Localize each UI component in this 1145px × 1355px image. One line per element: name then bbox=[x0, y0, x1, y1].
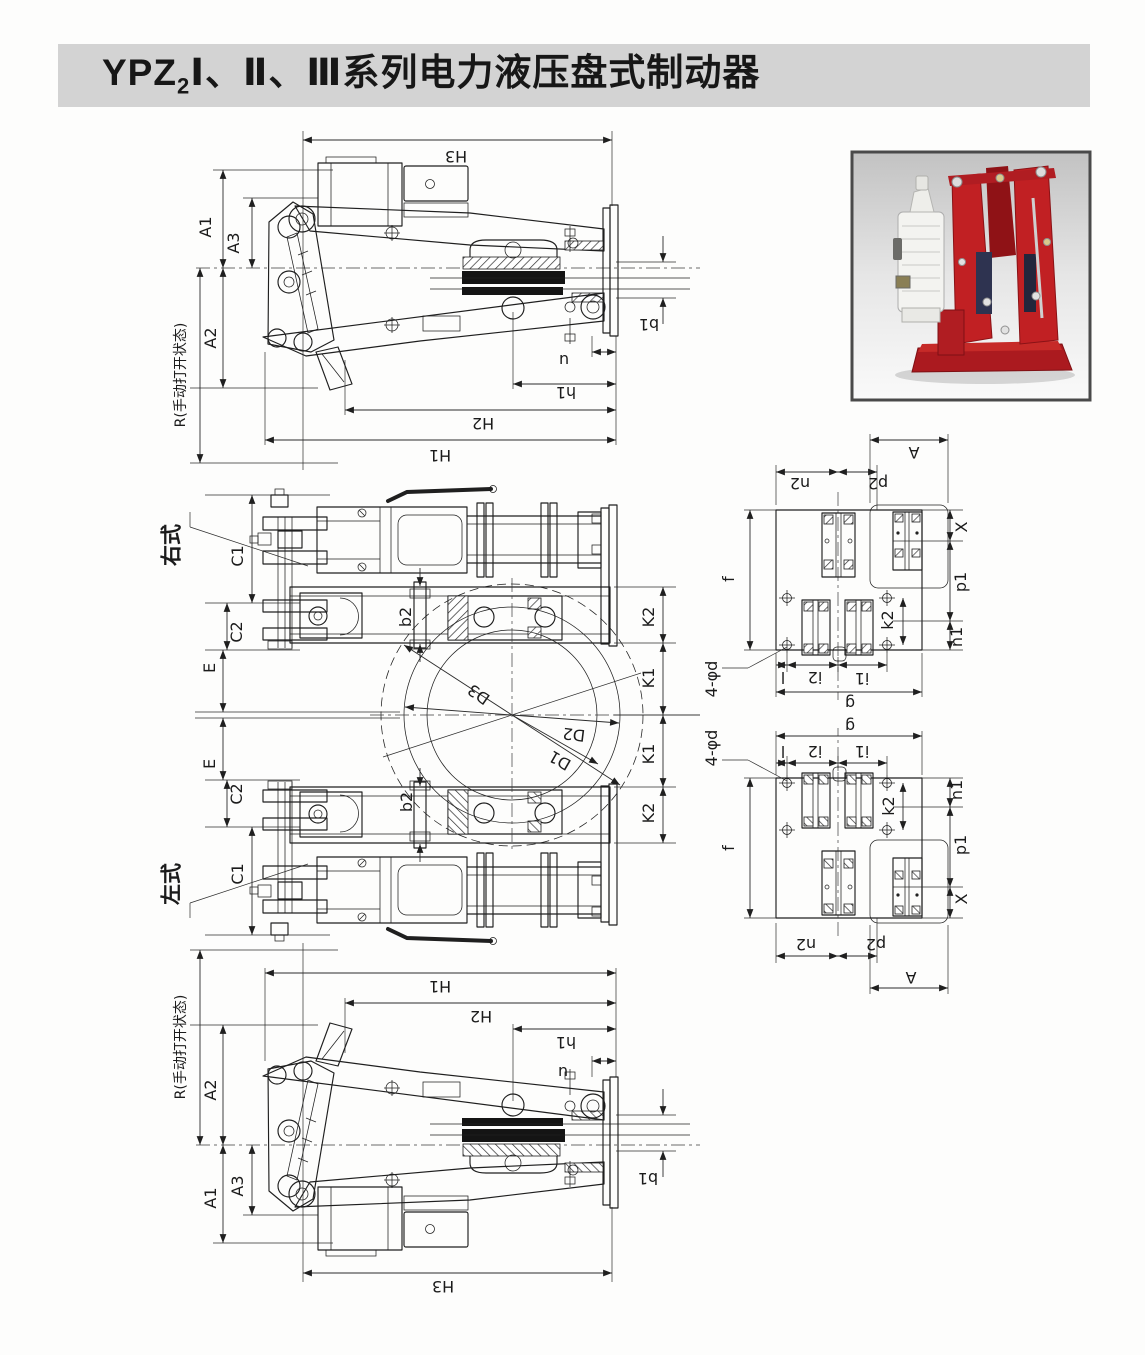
side-view-drawing bbox=[190, 131, 700, 470]
mounting-plate-diagram bbox=[722, 434, 963, 700]
plan-view-drawing bbox=[190, 486, 700, 716]
product-photo bbox=[852, 152, 1090, 400]
catalog-page: YPZ2Ⅰ、Ⅱ、Ⅲ系列电力液压盘式制动器 bbox=[0, 0, 1145, 1355]
technical-drawing bbox=[0, 0, 1145, 1355]
